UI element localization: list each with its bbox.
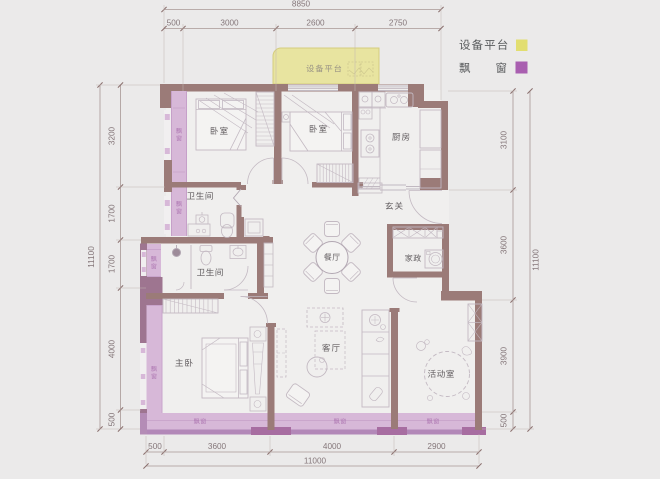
svg-text:500: 500	[148, 442, 162, 451]
svg-text:3600: 3600	[208, 442, 227, 451]
svg-text:3100: 3100	[500, 130, 509, 149]
svg-text:3600: 3600	[500, 235, 509, 254]
svg-text:500: 500	[108, 412, 117, 426]
svg-text:4000: 4000	[323, 442, 342, 451]
svg-text:2600: 2600	[306, 19, 325, 28]
svg-text:2900: 2900	[427, 442, 446, 451]
svg-text:3000: 3000	[220, 19, 239, 28]
svg-text:1700: 1700	[108, 204, 117, 223]
svg-text:11000: 11000	[304, 457, 327, 466]
svg-text:11100: 11100	[87, 246, 96, 268]
svg-text:3200: 3200	[108, 126, 117, 145]
svg-text:4000: 4000	[108, 339, 117, 358]
svg-text:1700: 1700	[108, 254, 117, 273]
svg-text:3900: 3900	[500, 346, 509, 365]
svg-text:2750: 2750	[389, 19, 408, 28]
svg-text:500: 500	[167, 19, 181, 28]
svg-text:8850: 8850	[292, 0, 311, 9]
svg-text:500: 500	[500, 413, 509, 427]
svg-text:11100: 11100	[532, 249, 541, 271]
